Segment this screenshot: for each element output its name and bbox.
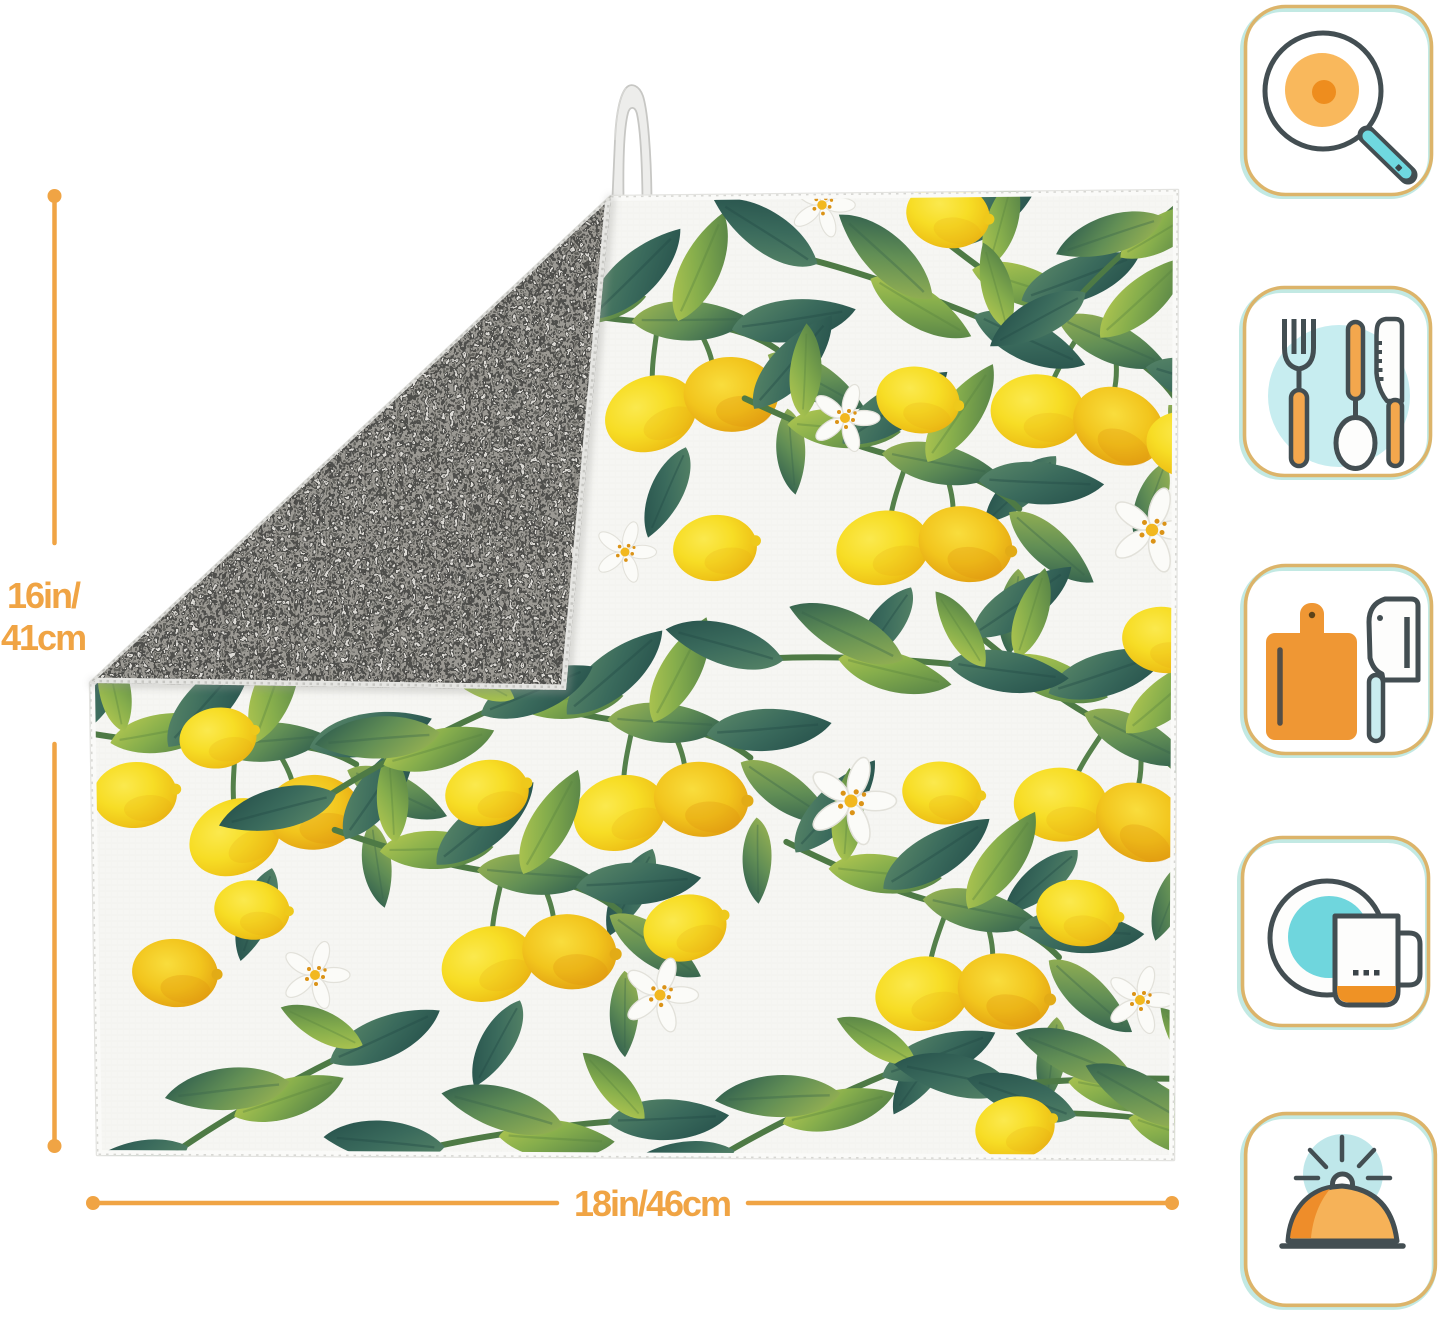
svg-text:16in/: 16in/ [7, 575, 81, 616]
svg-text:18in/46cm: 18in/46cm [574, 1183, 730, 1224]
svg-text:41cm: 41cm [1, 617, 85, 658]
